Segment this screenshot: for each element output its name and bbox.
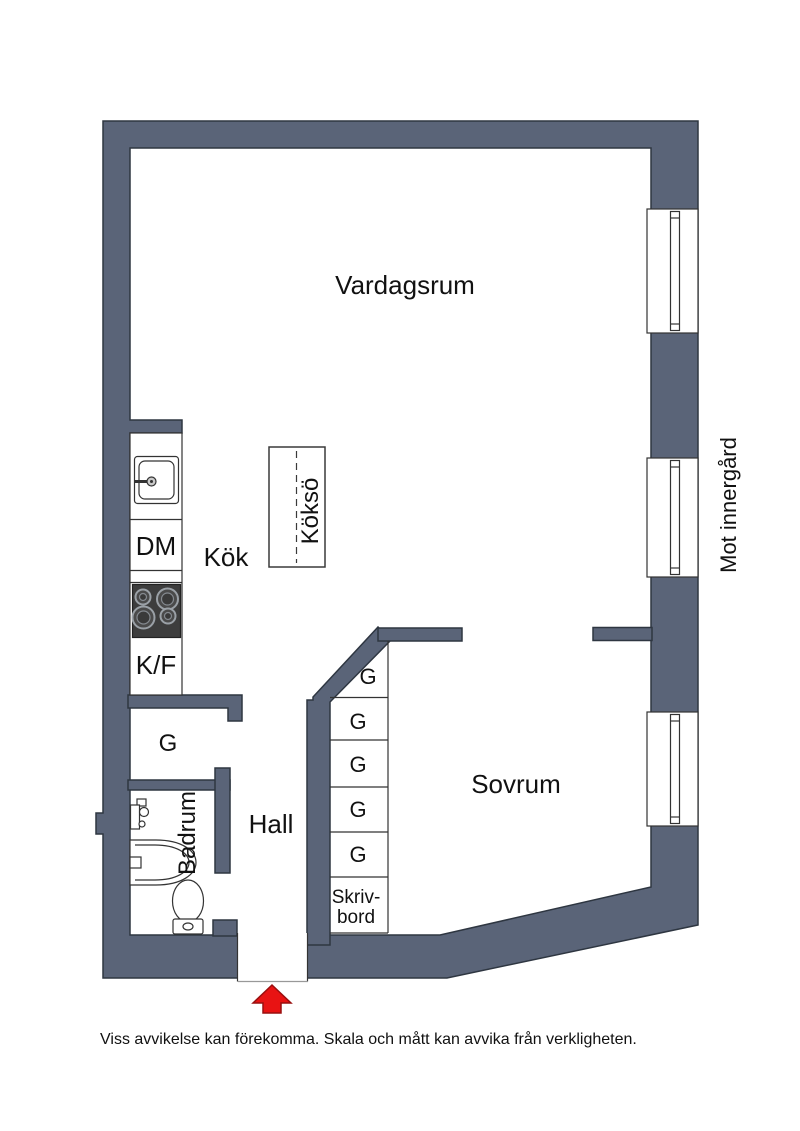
desk-label-line2: bord [337,907,375,928]
room-label-bathroom: Badrum [174,791,201,875]
closet-cell-label: G [349,797,366,822]
bedroom-partition-wall [378,628,462,641]
room-label-living-room: Vardagsrum [335,270,475,300]
interior-walls [128,627,652,945]
floor-plan-page: DM K/F Köksö G G G G G Skriv- bord [0,0,800,1131]
bathroom-door-jamb [213,920,237,936]
bedroom-partition-stub [593,628,652,641]
toilet-icon [173,880,204,934]
closet-cell-label: G [349,752,366,777]
stove-icon [133,585,181,638]
floor-plan: DM K/F Köksö G G G G G Skriv- bord [0,0,800,1131]
bathroom-hall-wall [215,768,230,873]
entrance [238,933,309,1013]
room-label-bedroom: Sovrum [471,769,561,799]
facade-label-mot-innergard: Mot innergård [716,437,741,573]
room-label-hall: Hall [249,809,294,839]
entrance-arrow-icon [253,985,291,1013]
sink-icon [135,457,179,504]
kitchen-unit: DM K/F [130,433,182,695]
window-3 [647,712,698,826]
desk-cell: Skriv- bord [332,887,381,928]
kitchen-island: Köksö [269,447,325,567]
closet-cell-label: G [349,709,366,734]
room-label-closet: G [159,730,178,757]
room-label-kitchen: Kök [204,542,250,572]
kitchen-island-label: Köksö [297,478,324,545]
closet-cell-label: G [349,842,366,867]
entrance-opening [238,933,309,982]
closet-cell-label: G [359,664,376,689]
window-2 [647,458,698,577]
window-1 [647,209,698,333]
windows [647,209,698,826]
closet-room-top-wall [128,695,242,721]
shower-mixer-icon [131,799,149,829]
dishwasher-label: DM [136,531,176,561]
desk-label-line1: Skriv- [332,887,381,908]
disclaimer-text: Viss avvikelse kan förekomma. Skala och … [100,1030,637,1048]
fridge-freezer-label: K/F [136,650,176,680]
